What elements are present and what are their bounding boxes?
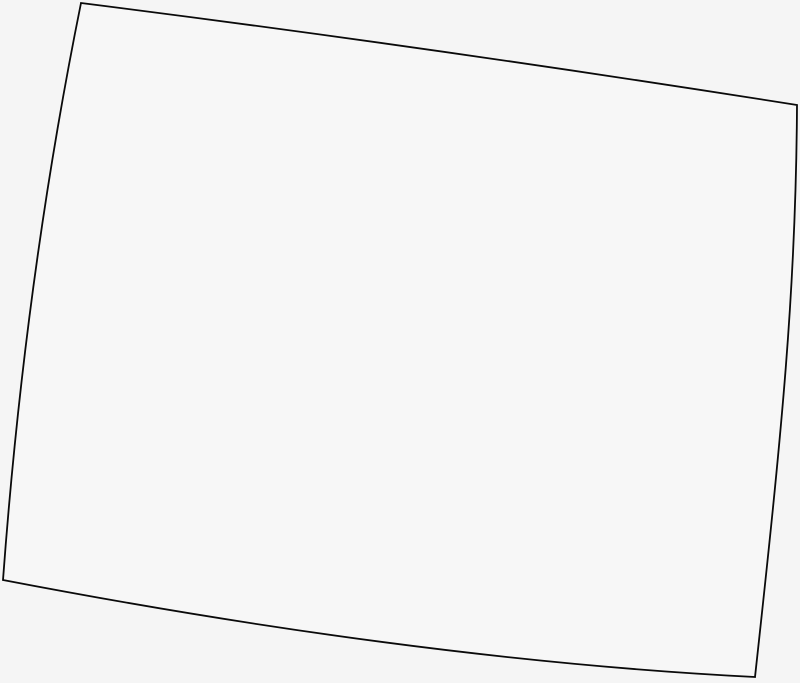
map-viewport — [0, 0, 800, 683]
wyoming-state-outline — [3, 3, 797, 677]
map-canvas — [0, 0, 800, 683]
